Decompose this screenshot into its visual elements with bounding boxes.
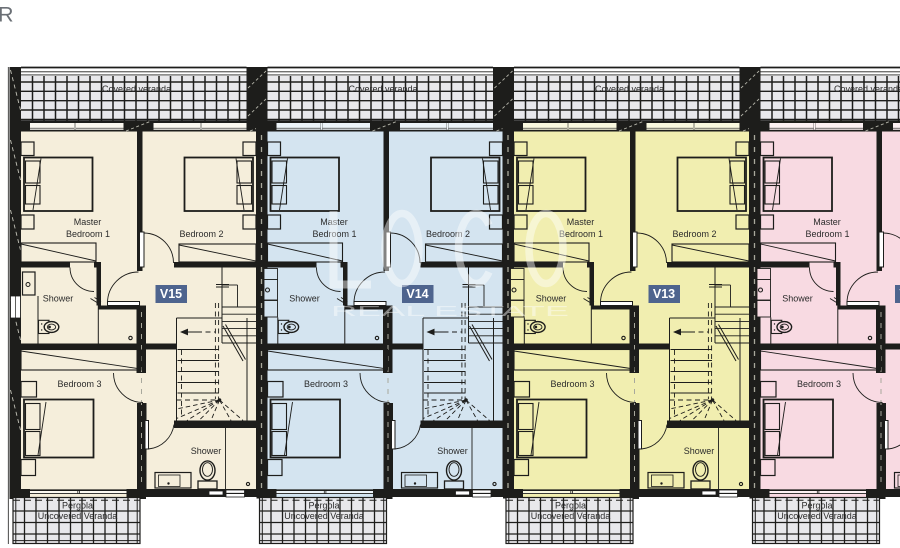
svg-text:Covered veranda: Covered veranda [348, 84, 417, 94]
svg-text:Uncovered Veranda: Uncovered Veranda [531, 511, 611, 521]
svg-text:Pergola: Pergola [801, 501, 832, 511]
svg-text:Bedroom 3: Bedroom 3 [797, 379, 841, 389]
svg-text:Shower: Shower [437, 446, 468, 456]
svg-text:Bedroom 3: Bedroom 3 [550, 379, 594, 389]
svg-text:Covered veranda: Covered veranda [102, 84, 171, 94]
svg-text:Master: Master [567, 217, 595, 227]
svg-text:Pergola: Pergola [308, 501, 339, 511]
svg-text:Shower: Shower [43, 294, 74, 304]
svg-text:Bedroom 1: Bedroom 1 [66, 229, 110, 239]
svg-text:Bedroom 1: Bedroom 1 [805, 229, 849, 239]
svg-text:Uncovered Veranda: Uncovered Veranda [284, 511, 364, 521]
svg-text:Bedroom 3: Bedroom 3 [304, 379, 348, 389]
svg-text:V14: V14 [406, 287, 428, 301]
svg-text:Uncovered Veranda: Uncovered Veranda [777, 511, 857, 521]
svg-text:Shower: Shower [289, 294, 320, 304]
svg-text:Bedroom 2: Bedroom 2 [179, 229, 223, 239]
svg-text:Covered veranda: Covered veranda [834, 84, 900, 94]
svg-text:Shower: Shower [684, 446, 715, 456]
svg-text:Uncovered Veranda: Uncovered Veranda [38, 511, 118, 521]
svg-text:V15: V15 [160, 287, 182, 301]
svg-text:Master: Master [74, 217, 102, 227]
svg-text:Pergola: Pergola [555, 501, 586, 511]
svg-text:Bedroom 2: Bedroom 2 [672, 229, 716, 239]
svg-text:Shower: Shower [782, 294, 813, 304]
svg-text:V13: V13 [653, 287, 675, 301]
svg-text:REAL ESTATE: REAL ESTATE [331, 303, 569, 320]
svg-text:Bedroom 3: Bedroom 3 [57, 379, 101, 389]
svg-text:Shower: Shower [191, 446, 222, 456]
svg-text:Master: Master [813, 217, 841, 227]
svg-text:R: R [0, 3, 14, 27]
svg-text:Pergola: Pergola [62, 501, 93, 511]
svg-text:Covered veranda: Covered veranda [595, 84, 664, 94]
svg-text:Shower: Shower [536, 294, 567, 304]
